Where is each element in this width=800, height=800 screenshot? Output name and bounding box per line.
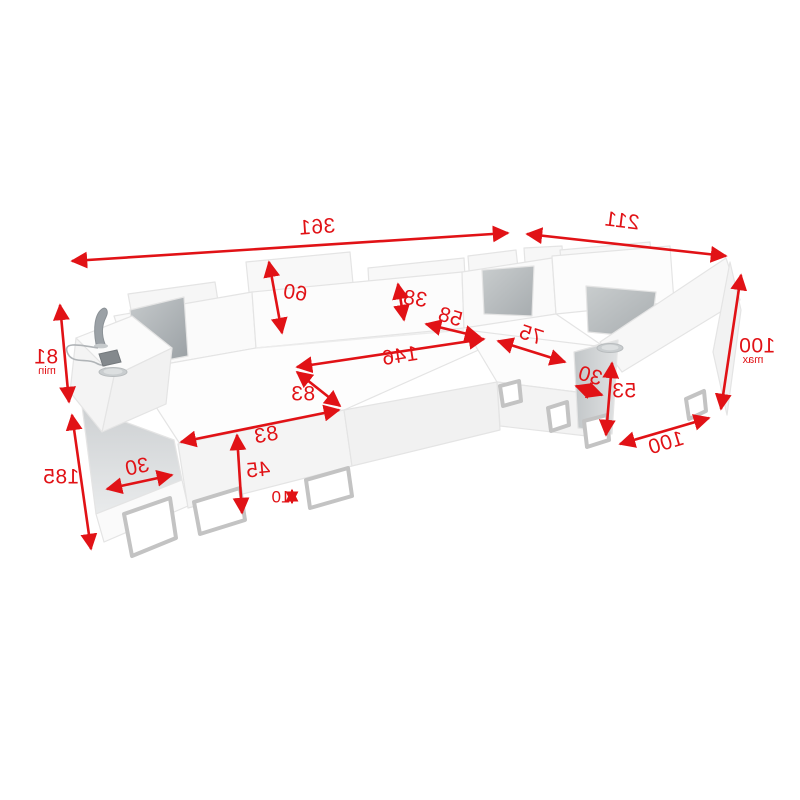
- label-back-height-qualifier: max: [742, 354, 763, 366]
- label-chaise-length: 185: [43, 466, 80, 489]
- cup-holder-left-inner: [104, 369, 123, 375]
- label-floor-clearance: 10: [272, 488, 291, 507]
- label-side-depth: 211: [603, 207, 641, 234]
- sofa-leg: [686, 391, 706, 419]
- label-backrest-height: 60: [281, 280, 308, 306]
- label-seat-height: 45: [245, 457, 271, 482]
- label-arm-height-right: 53: [612, 380, 636, 403]
- diagram-canvas: 361 211 100 max 100 53 30 75 146 58 38 6…: [0, 0, 800, 800]
- sofa-illustration: [67, 242, 741, 556]
- arrow-total-width: [72, 233, 508, 261]
- sofa-dimension-diagram: 361 211 100 max 100 53 30 75 146 58 38 6…: [0, 0, 800, 800]
- label-headrest-height: 38: [401, 286, 428, 312]
- sofa-leg: [548, 402, 569, 431]
- cup-holder-right-inner: [602, 345, 619, 351]
- label-chaise-front-width: 83: [252, 422, 280, 449]
- label-arm-front-width: 100: [645, 427, 687, 460]
- pillow-corner: [482, 266, 534, 316]
- sofa-leg: [500, 381, 521, 406]
- label-arm-height-left-qualifier: min: [38, 365, 56, 377]
- label-total-width: 361: [298, 214, 336, 239]
- label-chaise-side-depth: 83: [291, 383, 315, 406]
